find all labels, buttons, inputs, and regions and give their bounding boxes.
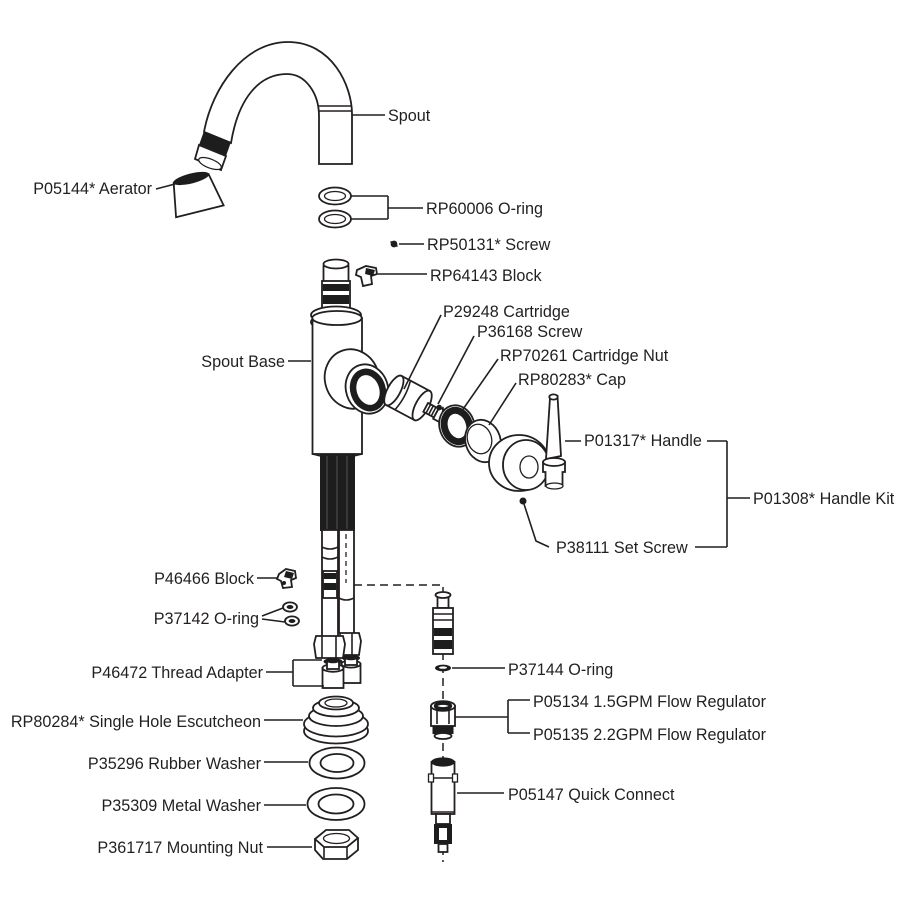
label-oring-top: RP60006 O-ring [426,200,543,218]
metal-washer-drawing [308,788,365,820]
thread-adapter-drawing [323,655,361,688]
set-screw-drawing [520,498,527,505]
label-screw-mid: P36168 Screw [477,323,583,341]
label-thread-adapter: P46472 Thread Adapter [91,664,263,682]
label-block-top: RP64143 Block [430,267,542,285]
label-set-screw: P38111 Set Screw [556,539,688,557]
mounting-nut-drawing [315,830,358,859]
label-handle: P01317* Handle [584,432,702,450]
top-block-drawing [356,266,377,286]
labels: Spout P05144* Aerator RP60006 O-ring RP5… [11,107,895,857]
label-flow-regulator-22: P05135 2.2GPM Flow Regulator [533,726,767,744]
spout-base-drawing [311,260,395,659]
label-block-bottom: P46466 Block [154,570,255,588]
faucet-parts-diagram: Spout P05144* Aerator RP60006 O-ring RP5… [0,0,900,900]
small-oring-drawing [435,665,451,672]
spout-orings-drawing [319,188,351,228]
label-cap: RP80283* Cap [518,371,626,389]
handle-drawing [489,394,565,491]
quick-connect-drawing [429,757,458,852]
label-mounting-nut: P361717 Mounting Nut [97,839,263,857]
label-oring-small: P37144 O-ring [508,661,613,679]
label-cartridge: P29248 Cartridge [443,303,570,321]
rubber-washer-drawing [310,748,365,779]
bottom-block-drawing [277,569,296,588]
label-metal-washer: P35309 Metal Washer [101,797,261,815]
label-handle-kit: P01308* Handle Kit [753,490,895,508]
escutcheon-drawing [304,697,368,744]
spout-drawing [195,42,352,172]
label-rubber-washer: P35296 Rubber Washer [88,755,262,773]
flow-regulator-bracket [455,700,530,733]
top-screw-drawing [391,241,398,248]
label-cartridge-nut: RP70261 Cartridge Nut [500,347,669,365]
aerator-drawing [167,168,224,218]
label-oring-mid: P37142 O-ring [154,610,259,628]
flow-regulator-drawing [431,701,455,739]
label-spout-base: Spout Base [201,353,285,371]
label-screw-top: RP50131* Screw [427,236,551,254]
diagram-svg: Spout P05144* Aerator RP60006 O-ring RP5… [0,0,900,900]
label-quick-connect: P05147 Quick Connect [508,786,675,804]
mid-orings-drawing [283,602,299,625]
thread-adapter-bracket [266,660,324,686]
handle-kit-bracket [695,441,750,547]
label-aerator: P05144* Aerator [33,180,152,198]
outlet-stub-drawing [433,592,453,654]
label-spout: Spout [388,107,431,125]
label-escutcheon: RP80284* Single Hole Escutcheon [11,713,261,731]
label-flow-regulator-15: P05134 1.5GPM Flow Regulator [533,693,767,711]
